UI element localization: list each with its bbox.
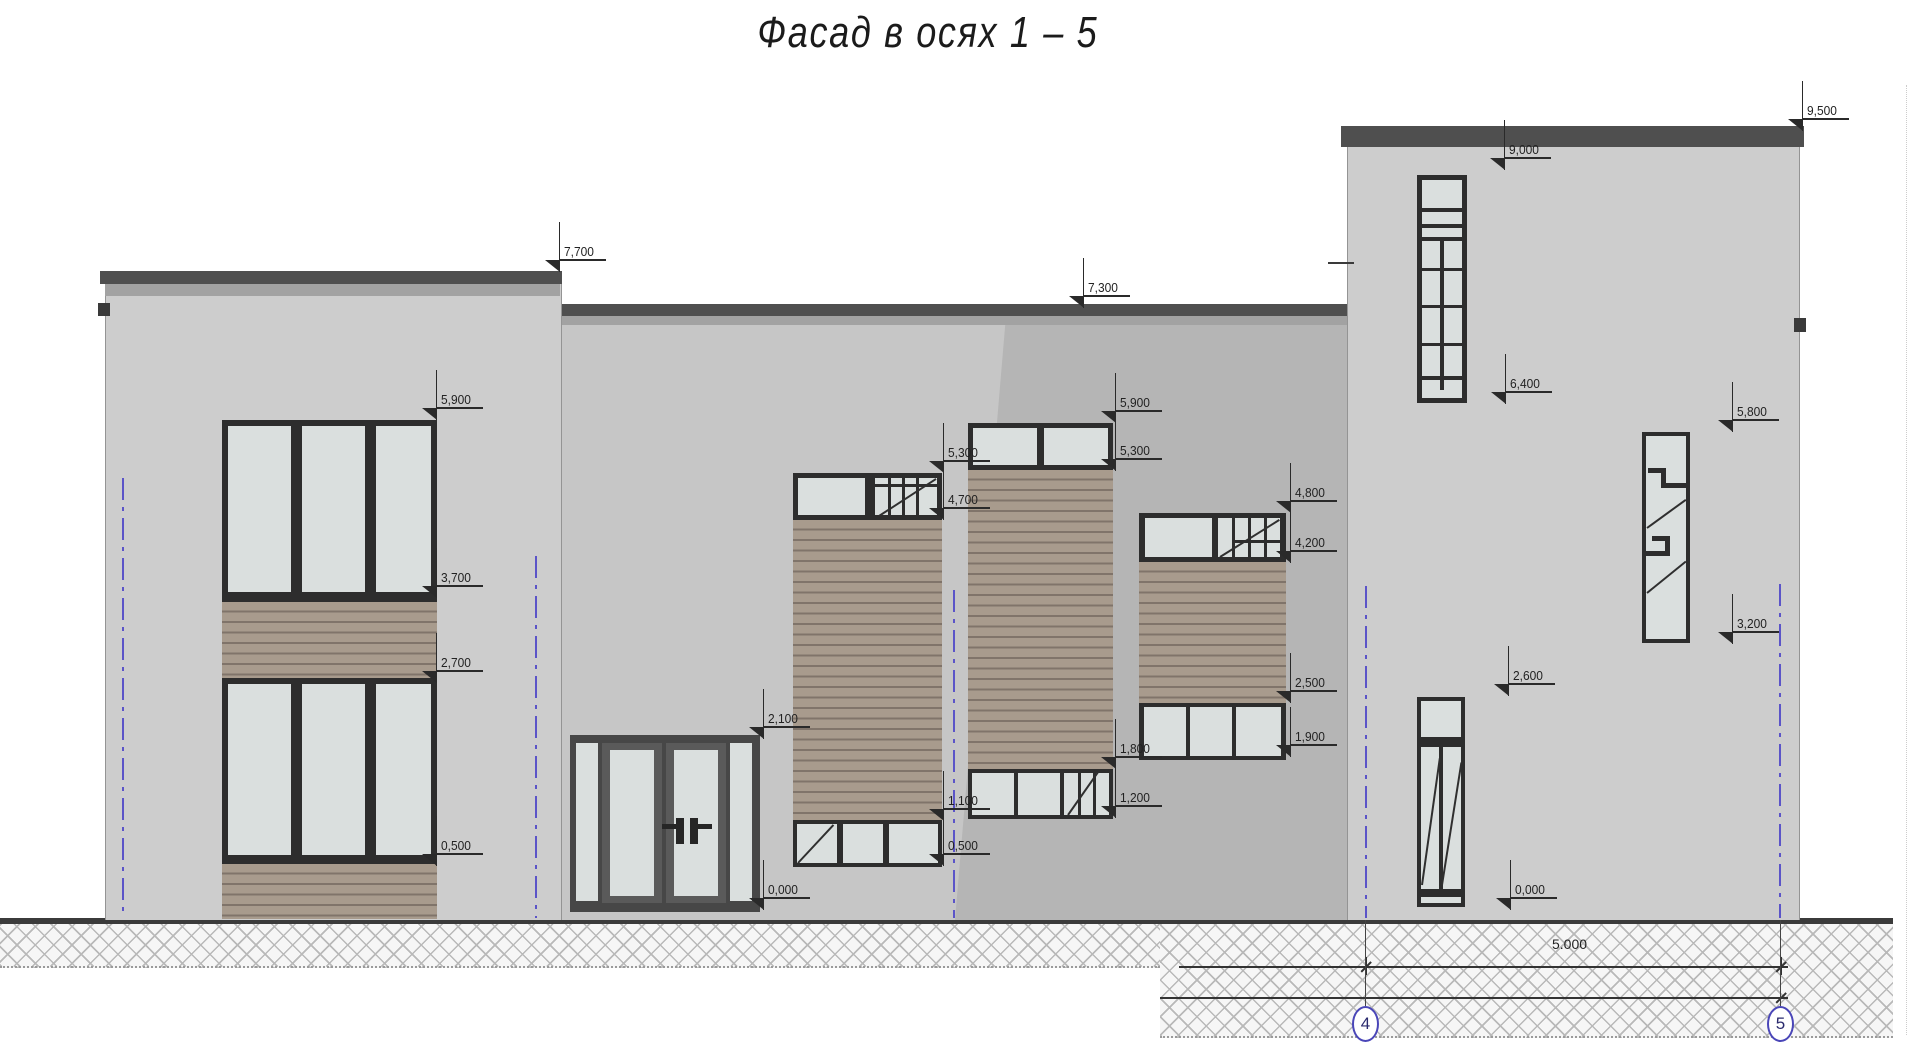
elevation-value: 5,800 bbox=[1737, 404, 1767, 419]
stripB-lower-window bbox=[968, 769, 1113, 819]
facade-drawing: Фасад в осях 1 – 5 bbox=[0, 0, 1920, 1048]
stripB-clerestory-window bbox=[968, 423, 1113, 470]
elevation-value: 5,300 bbox=[1120, 443, 1150, 458]
tower-upper-window bbox=[1417, 175, 1467, 403]
marker-underline bbox=[560, 259, 606, 261]
tower-scupper bbox=[1794, 318, 1806, 332]
axis-line bbox=[953, 590, 955, 918]
left-upper-window bbox=[222, 420, 437, 602]
marker-underline bbox=[1116, 756, 1162, 758]
tower-stair-window bbox=[1642, 432, 1690, 643]
left-wood-band-lower bbox=[222, 864, 437, 919]
elevation-value: 6,400 bbox=[1510, 376, 1540, 391]
elevation-value: 2,600 bbox=[1513, 668, 1543, 683]
left-lower-window bbox=[222, 678, 437, 864]
elevation-value: 1,100 bbox=[948, 793, 978, 808]
stripC-clerestory-window bbox=[1139, 513, 1286, 562]
marker-underline bbox=[437, 670, 483, 672]
left-block-scupper bbox=[98, 303, 110, 316]
axis-line bbox=[122, 478, 124, 918]
marker-underline bbox=[944, 808, 990, 810]
dimension-line-upper bbox=[1179, 966, 1788, 968]
axis-bubble-5: 5 bbox=[1767, 1006, 1794, 1042]
marker-underline bbox=[1116, 410, 1162, 412]
marker-underline bbox=[1116, 805, 1162, 807]
marker-underline bbox=[1733, 631, 1779, 633]
marker-underline bbox=[1509, 683, 1555, 685]
elevation-value: 2,100 bbox=[768, 711, 798, 726]
axis-bubble-4: 4 bbox=[1352, 1006, 1379, 1042]
marker-underline bbox=[1803, 118, 1849, 120]
elevation-value: 0,000 bbox=[1515, 882, 1545, 897]
elevation-value: 4,200 bbox=[1295, 535, 1325, 550]
entrance-door bbox=[570, 735, 760, 912]
marker-underline bbox=[1291, 550, 1337, 552]
dimension-text: 5.000 bbox=[1552, 936, 1587, 952]
axis-extension bbox=[1780, 920, 1781, 1006]
left-wood-band-upper bbox=[222, 602, 437, 678]
tower-wall bbox=[1347, 147, 1800, 920]
elevation-value: 7,700 bbox=[564, 244, 594, 259]
elevation-value: 4,800 bbox=[1295, 485, 1325, 500]
stripA-clerestory-window bbox=[793, 473, 942, 520]
axis-extension bbox=[1365, 920, 1366, 1006]
marker-underline bbox=[1291, 500, 1337, 502]
elevation-value: 2,500 bbox=[1295, 675, 1325, 690]
left-block-cap bbox=[100, 271, 562, 284]
marker-underline bbox=[437, 585, 483, 587]
tower-left-tick bbox=[1328, 262, 1354, 264]
marker-underline bbox=[437, 407, 483, 409]
elevation-value: 3,700 bbox=[441, 570, 471, 585]
central-parapet bbox=[560, 304, 1347, 316]
door-handle-left bbox=[676, 818, 684, 844]
marker-underline bbox=[1511, 897, 1557, 899]
elevation-value: 5,900 bbox=[441, 392, 471, 407]
elevation-value: 5,900 bbox=[1120, 395, 1150, 410]
drawing-title: Фасад в осях 1 – 5 bbox=[757, 8, 1098, 58]
marker-underline bbox=[944, 460, 990, 462]
stripA-wood bbox=[793, 520, 942, 820]
elevation-value: 9,000 bbox=[1509, 142, 1539, 157]
elevation-value: 9,500 bbox=[1807, 103, 1837, 118]
ground-hatch-left bbox=[0, 924, 1160, 968]
elevation-value: 2,700 bbox=[441, 655, 471, 670]
axis-line bbox=[1779, 584, 1781, 918]
elevation-value: 4,700 bbox=[948, 492, 978, 507]
marker-underline bbox=[1291, 690, 1337, 692]
elevation-value: 5,300 bbox=[948, 445, 978, 460]
elevation-value: 1,200 bbox=[1120, 790, 1150, 805]
elevation-value: 1,800 bbox=[1120, 741, 1150, 756]
elevation-value: 1,900 bbox=[1295, 729, 1325, 744]
marker-underline bbox=[1084, 295, 1130, 297]
stripC-wood bbox=[1139, 562, 1286, 703]
elevation-value: 0,000 bbox=[768, 882, 798, 897]
marker-underline bbox=[1506, 391, 1552, 393]
left-block-cap-band bbox=[105, 284, 560, 296]
stripB-wood bbox=[968, 470, 1113, 769]
central-parapet-band bbox=[560, 316, 1347, 325]
elevation-value: 3,200 bbox=[1737, 616, 1767, 631]
marker-underline bbox=[1291, 744, 1337, 746]
axis-line bbox=[1365, 586, 1367, 918]
stripC-lower-window bbox=[1139, 703, 1286, 760]
axis-line bbox=[535, 556, 537, 918]
marker-underline bbox=[764, 897, 810, 899]
dimension-line-lower bbox=[1160, 997, 1788, 999]
marker-underline bbox=[944, 853, 990, 855]
elevation-value: 0,500 bbox=[441, 838, 471, 853]
marker-underline bbox=[1733, 419, 1779, 421]
marker-underline bbox=[1116, 458, 1162, 460]
tower-cap bbox=[1341, 126, 1804, 147]
door-handle-right bbox=[690, 818, 698, 844]
elevation-value: 7,300 bbox=[1088, 280, 1118, 295]
marker-underline bbox=[1505, 157, 1551, 159]
marker-underline bbox=[944, 507, 990, 509]
marker-underline bbox=[437, 853, 483, 855]
elevation-value: 0,500 bbox=[948, 838, 978, 853]
marker-underline bbox=[764, 726, 810, 728]
sheet-edge bbox=[1906, 85, 1907, 1035]
